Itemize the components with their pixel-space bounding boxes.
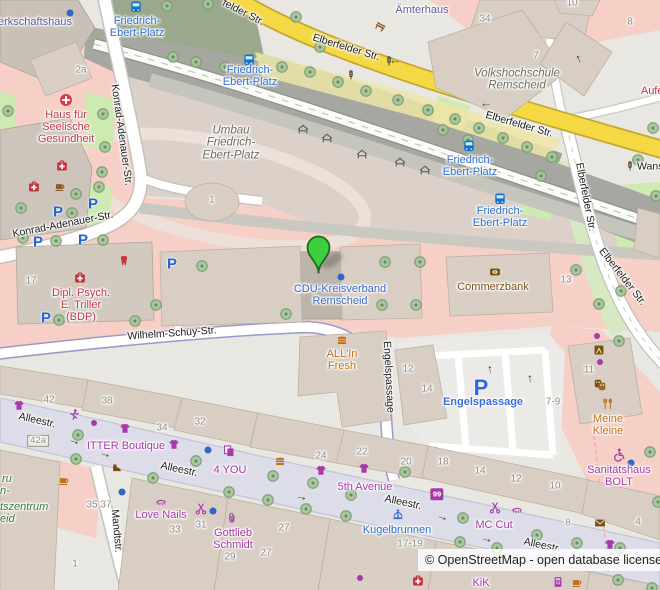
dotblue-icon (205, 447, 212, 454)
bench-icon (374, 21, 387, 33)
hn-11: 11 (584, 366, 594, 377)
burger-icon (336, 334, 349, 346)
hn-1-oval: 1 (209, 196, 215, 207)
eyelash-icon (510, 504, 524, 516)
tree-center-dot (102, 239, 105, 242)
bank-icon (488, 266, 502, 278)
envelope-icon (593, 517, 607, 529)
tree-center-dot (172, 56, 175, 59)
shop-4you: 4 YOU (214, 465, 247, 477)
stop-friedrich-ebert-platz-1: Friedrich-Ebert-Platz (110, 16, 164, 40)
hn-20: 20 (400, 458, 411, 469)
shop-sanitaetshaus-bolt: SanitätshausBOLT (587, 465, 651, 489)
kit-icon (411, 575, 425, 588)
map-marker[interactable] (305, 235, 332, 275)
tree-center-dot (312, 482, 315, 485)
shop-mc-cut: MC Cut (475, 520, 512, 532)
shelter-icon (394, 157, 407, 169)
poi-aufer: Aufer (641, 86, 660, 98)
hn-42a: 42a (27, 435, 49, 447)
tshirt-icon (168, 439, 181, 451)
tree-center-dot (104, 146, 107, 149)
tree-center-dot (285, 313, 288, 316)
paperclip-icon (226, 511, 238, 525)
hn-18: 18 (437, 458, 448, 469)
P-icon: P (41, 310, 51, 327)
road-mandtstr: Mandtstr. (108, 509, 123, 553)
area-volkshochschule: VolkshochschuleRemscheid (474, 68, 560, 93)
kit-icon (55, 160, 69, 173)
wheelchair-icon (612, 448, 626, 462)
burger-icon (274, 455, 287, 467)
tree-center-dot (195, 460, 198, 463)
badge-icon: 99 (430, 488, 443, 500)
stop-friedrich-ebert-platz-4: Friedrich-Ebert-Platz (473, 206, 527, 230)
dotpurple-icon (597, 359, 603, 365)
shop-love-nails: Love Nails (135, 510, 186, 522)
road-wans: Wans (637, 161, 660, 172)
tree-center-dot (419, 261, 422, 264)
shop-gottlieb-schmidt: GottliebSchmidt (213, 528, 253, 552)
shelter-icon (297, 124, 310, 136)
tshirt-icon (358, 463, 371, 475)
tree-center-dot (228, 491, 231, 494)
tshirt-icon (119, 423, 132, 435)
P-icon: P (167, 256, 177, 273)
tree-center-dot (267, 499, 270, 502)
dotblue-icon (210, 508, 217, 515)
hn-42: 42 (43, 396, 54, 407)
hn-10-top: 10 (566, 0, 577, 9)
hn-32: 32 (194, 418, 205, 429)
hn-8-allee: 8 (565, 519, 571, 530)
signal-icon (625, 160, 636, 173)
P-icon: P (78, 232, 88, 249)
tree-center-dot (134, 320, 137, 323)
tree-center-dot (442, 129, 445, 132)
hn-12-engels: 12 (402, 365, 413, 376)
hn-14-allee: 14 (474, 467, 485, 478)
poi-gewerkschaftshaus: erkschaftshaus (0, 17, 72, 29)
tree-center-dot (576, 542, 579, 545)
bus-icon (494, 193, 507, 206)
stop-friedrich-ebert-platz-2: Friedrich-Ebert-Platz (223, 65, 277, 89)
P-icon: P (88, 196, 98, 213)
tree-center-dot (195, 61, 198, 64)
hn-34-top: 34 (479, 15, 490, 26)
tree-center-dot (598, 303, 601, 306)
tree-center-dot (305, 508, 308, 511)
arrow-icon: → (481, 363, 496, 376)
tree-center-dot (272, 475, 275, 478)
area-green-fragment-4: eid (0, 514, 15, 526)
hn-14-engels: 14 (421, 385, 432, 396)
tree-center-dot (101, 171, 104, 174)
tree-center-dot (201, 265, 204, 268)
poi-allin-fresh: ALL'InFresh (327, 349, 358, 373)
tooth-icon (118, 255, 131, 268)
shop-itter-boutique: ITTER Boutique (87, 441, 165, 453)
tree-center-dot (652, 127, 655, 130)
tree-center-dot (397, 99, 400, 102)
tree-center-dot (155, 304, 158, 307)
hn-34-allee: 34 (156, 424, 167, 435)
map-canvas[interactable]: PPPPPPP→→→→→→→→→→99 felder Str.Elberfeld… (0, 0, 660, 590)
hn-7: 7 (533, 52, 539, 63)
dotpurple-icon (594, 333, 600, 339)
poi-commerzbank: Commerzbank (457, 282, 529, 294)
road-engelspassage: Engelspassage (380, 341, 395, 413)
hn-7-9: 7-9 (546, 398, 560, 409)
tree-center-dot (427, 109, 430, 112)
poi-cdu-kreisverband: CDU-KreisverbandRemscheid (294, 284, 386, 308)
eyelash-icon (154, 496, 168, 508)
map-marker-pin-icon (305, 235, 332, 275)
tree-center-dot (75, 458, 78, 461)
tree-center-dot (655, 195, 658, 198)
attribution-bar[interactable]: © OpenStreetMap - open database license (418, 549, 660, 571)
fountain-icon (391, 508, 405, 522)
poi-aemterhaus: Ämterhaus (395, 5, 448, 17)
tree-center-dot (502, 137, 505, 140)
tree-center-dot (71, 212, 74, 215)
hn-13: 13 (560, 276, 571, 287)
hn-10-allee: 10 (549, 482, 560, 493)
tree-center-dot (459, 541, 462, 544)
tree-center-dot (102, 113, 105, 116)
crosscircle-icon (59, 93, 73, 107)
masks-icon (593, 379, 607, 392)
shelter-icon (356, 149, 369, 161)
tree-center-dot (649, 451, 652, 454)
hn-4: 4 (635, 518, 641, 529)
tree-center-dot (478, 127, 481, 130)
tree-center-dot (536, 534, 539, 537)
tree-center-dot (415, 304, 418, 307)
poi-meine-kleine: MeineKleine (593, 414, 624, 438)
hn-27-a: 27 (278, 524, 289, 535)
kit-icon (27, 181, 41, 194)
shop-5th-avenue: 5th Avenue (338, 482, 393, 494)
poi-kugelbrunnen: Kugelbrunnen (363, 525, 432, 537)
tree-center-dot (295, 16, 298, 19)
dotblue-icon (119, 489, 126, 496)
shoe-icon (111, 462, 124, 474)
hn-17: 17 (25, 277, 36, 288)
hn-33: 33 (169, 526, 180, 537)
tree-center-dot (454, 118, 457, 121)
bus-icon (463, 140, 476, 153)
tree-center-dot (337, 81, 340, 84)
tree-center-dot (618, 340, 621, 343)
shop-kik: KiK (472, 578, 489, 590)
hn-24: 24 (315, 452, 326, 463)
tree-center-dot (75, 193, 78, 196)
tree-center-dot (540, 175, 543, 178)
arrow-icon: → (521, 372, 536, 385)
dotblue-icon (338, 274, 345, 281)
bus-icon (130, 1, 143, 14)
cupor-icon (58, 475, 71, 488)
tree-center-dot (345, 515, 348, 518)
shelter-icon (321, 133, 334, 145)
tree-center-dot (281, 66, 284, 69)
scissors-icon (489, 502, 502, 515)
kit-icon (73, 272, 87, 285)
tree-center-dot (462, 517, 465, 520)
tree-center-dot (309, 71, 312, 74)
tree-center-dot (207, 3, 210, 6)
attribution-text[interactable]: © OpenStreetMap - open database license (425, 553, 660, 567)
runner-icon (68, 409, 81, 422)
hn-12-allee: 12 (510, 475, 521, 486)
tree-center-dot (20, 207, 23, 210)
copyshop-icon (223, 445, 236, 458)
tree-center-dot (620, 290, 623, 293)
tree-center-dot (350, 494, 353, 497)
hn-2a: 2a (75, 66, 86, 77)
till-icon (552, 575, 564, 589)
tree-center-dot (384, 261, 387, 264)
tshirt-icon (315, 465, 328, 477)
tree-center-dot (551, 156, 554, 159)
hn-27-b: 27 (260, 549, 271, 560)
cupor-icon (571, 577, 584, 590)
tree-center-dot (657, 501, 660, 504)
tree-center-dot (55, 240, 58, 243)
tree-center-dot (617, 579, 620, 582)
tree-center-dot (166, 5, 169, 8)
poi-haus-seelische-gesundheit: Haus fürSeelischeGesundheit (38, 110, 94, 146)
miscbrown-icon (593, 344, 606, 357)
tree-center-dot (98, 186, 101, 189)
hn-1-mandt: 1 (72, 560, 78, 571)
forkknife-icon (602, 398, 615, 411)
parking-engelspassage: Engelspassage (443, 397, 523, 409)
hn-35-37: 35,37 (86, 501, 111, 512)
hn-8-top: 8 (627, 18, 633, 29)
cupbr-icon (54, 181, 67, 194)
tree-center-dot (526, 146, 529, 149)
arrow-icon: → (389, 57, 401, 71)
tree-center-dot (7, 110, 10, 113)
tree-center-dot (575, 269, 578, 272)
poi-triller: Dipl. Psych.E. Triller(BDP) (52, 288, 110, 324)
hn-31: 31 (195, 521, 206, 532)
area-umbau: UmbauFriedrich-Ebert-Platz (203, 124, 260, 161)
shelter-icon (419, 165, 432, 177)
dotpurple-icon (357, 575, 363, 581)
hn-38: 38 (101, 397, 112, 408)
hn-29: 29 (224, 553, 235, 564)
tree-center-dot (152, 477, 155, 480)
tree-center-dot (651, 587, 654, 590)
scissors-icon (195, 503, 208, 516)
area-green-fragment-2: n- (0, 486, 10, 498)
hn-22: 22 (356, 448, 367, 459)
signal-icon (346, 69, 357, 82)
stop-friedrich-ebert-platz-3: Friedrich-Ebert-Platz (443, 155, 497, 179)
dotpurple-icon (91, 420, 97, 426)
tree-center-dot (404, 471, 407, 474)
tree-center-dot (365, 90, 368, 93)
